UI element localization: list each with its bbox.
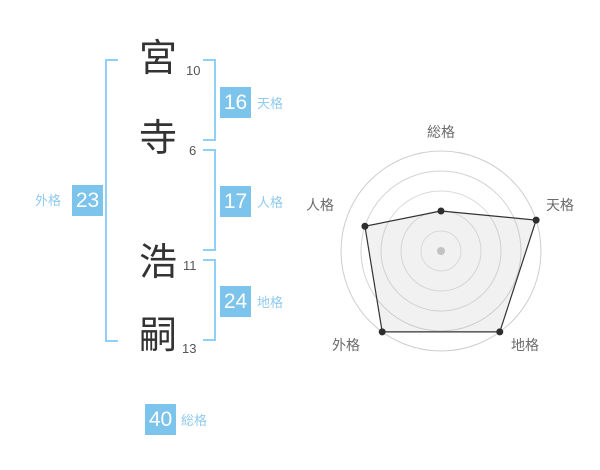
tenkaku-value-badge: 16 bbox=[220, 87, 251, 118]
soukaku-value-badge: 40 bbox=[145, 404, 176, 435]
radar-data-polygon bbox=[365, 211, 536, 332]
radar-data-point bbox=[496, 328, 503, 335]
gaikaku-label: 外格 bbox=[35, 194, 61, 207]
family-char-2-strokes: 6 bbox=[189, 144, 196, 157]
radar-chart: 総格天格地格外格人格 bbox=[300, 115, 585, 370]
name-analysis-page: { "name": { "family": [ {"char": "宮", "s… bbox=[0, 0, 600, 470]
jinkaku-label: 人格 bbox=[257, 196, 283, 209]
radar-data-point bbox=[361, 223, 368, 230]
radar-axis-label: 地格 bbox=[511, 337, 539, 353]
radar-axis-label: 外格 bbox=[332, 337, 360, 353]
given-char-2: 嗣 bbox=[136, 317, 180, 355]
jinkaku-value-badge: 17 bbox=[220, 186, 251, 217]
soukaku-label: 総格 bbox=[181, 414, 207, 427]
gaikaku-value-badge: 23 bbox=[72, 185, 103, 216]
family-char-1-strokes: 10 bbox=[186, 64, 200, 77]
jinkaku-bracket bbox=[203, 149, 216, 251]
chikaku-bracket bbox=[203, 259, 216, 341]
radar-axis-label: 人格 bbox=[306, 197, 334, 213]
family-char-2: 寺 bbox=[136, 120, 180, 158]
tenkaku-bracket bbox=[203, 59, 216, 141]
chikaku-label: 地格 bbox=[257, 296, 283, 309]
radar-axis-label: 総格 bbox=[427, 124, 455, 140]
given-char-2-strokes: 13 bbox=[182, 342, 196, 355]
radar-data-point bbox=[379, 328, 386, 335]
given-char-1: 浩 bbox=[136, 244, 180, 282]
radar-data-point bbox=[533, 217, 540, 224]
tenkaku-label: 天格 bbox=[257, 97, 283, 110]
radar-axis-label: 天格 bbox=[546, 197, 574, 213]
gaikaku-bracket bbox=[105, 59, 118, 342]
radar-data-point bbox=[438, 208, 445, 215]
given-char-1-strokes: 11 bbox=[183, 259, 197, 272]
family-char-1: 宮 bbox=[136, 40, 180, 78]
chikaku-value-badge: 24 bbox=[220, 286, 251, 317]
